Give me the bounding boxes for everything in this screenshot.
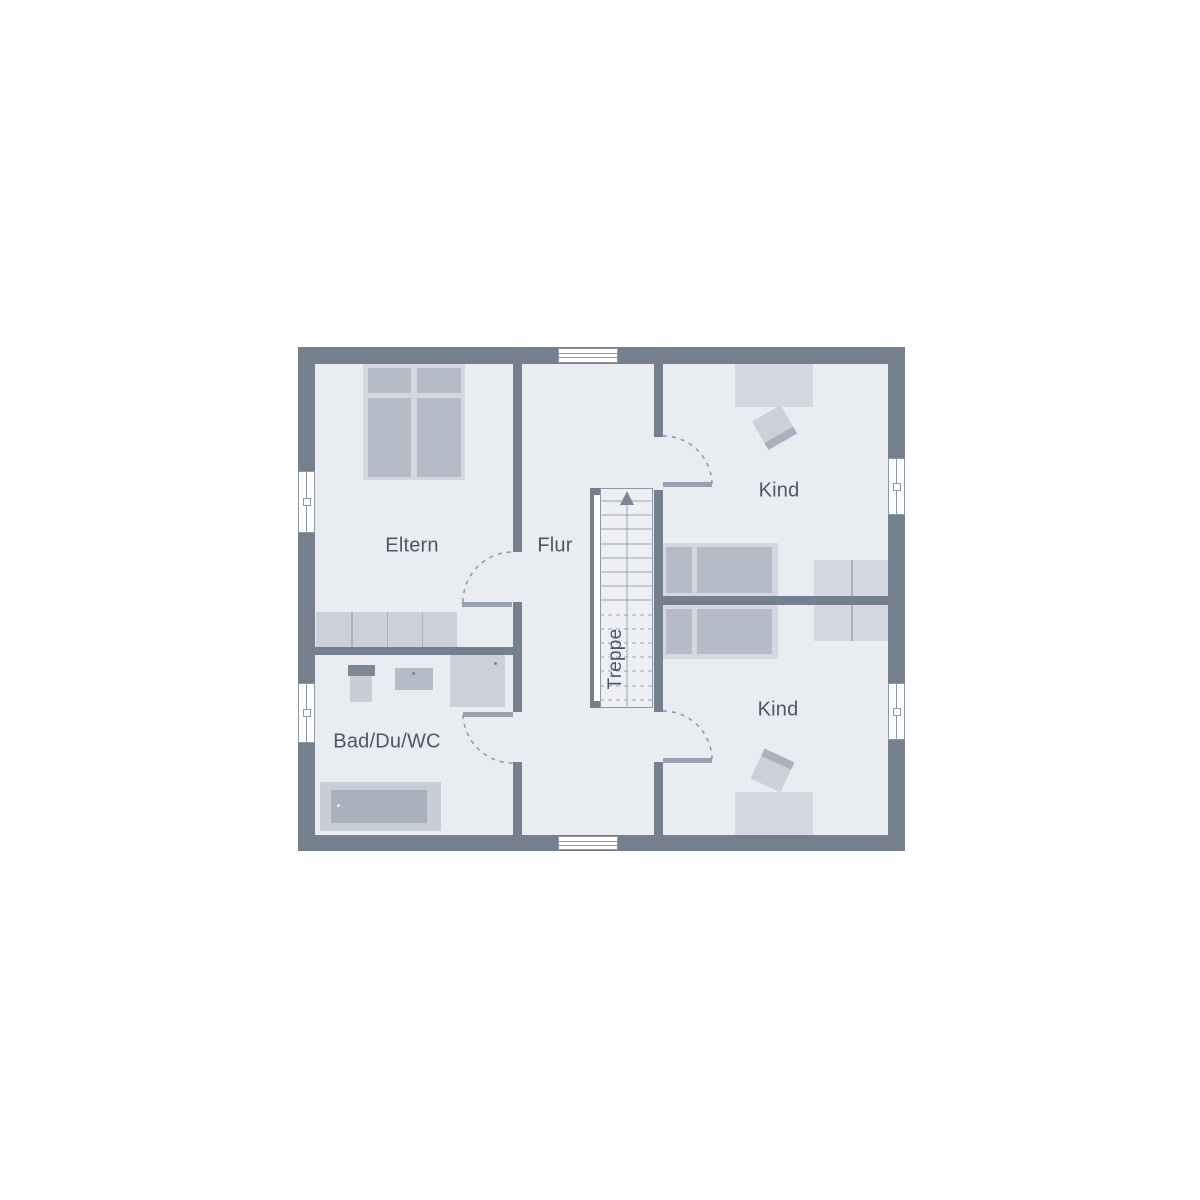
window-handle-icon	[303, 498, 311, 506]
window-handle-icon	[893, 708, 901, 716]
window-bottom	[558, 836, 618, 850]
room-label-kind-top: Kind	[759, 480, 800, 503]
door-arc-kind1	[663, 436, 712, 485]
window-right-upper	[888, 458, 905, 515]
door-arc-eltern	[463, 552, 513, 602]
floor-plan-page: Eltern Flur Kind Kind Bad/Du/WC Treppe	[0, 0, 1200, 1200]
window-handle-icon	[303, 709, 311, 717]
room-label-kind-bottom: Kind	[758, 699, 799, 722]
stairs-and-doors-overlay	[298, 347, 905, 851]
door-arc-kind2	[663, 711, 712, 760]
window-left-upper	[298, 471, 315, 533]
window-left-lower	[298, 683, 315, 743]
room-label-bad: Bad/Du/WC	[333, 731, 440, 754]
door-arc-bad	[463, 715, 513, 763]
room-label-eltern: Eltern	[385, 535, 438, 558]
room-label-treppe: Treppe	[605, 629, 627, 690]
floor-plan: Eltern Flur Kind Kind Bad/Du/WC Treppe	[298, 347, 905, 851]
window-handle-icon	[893, 483, 901, 491]
room-label-flur: Flur	[537, 535, 572, 558]
window-right-lower	[888, 683, 905, 740]
window-top	[558, 348, 618, 363]
